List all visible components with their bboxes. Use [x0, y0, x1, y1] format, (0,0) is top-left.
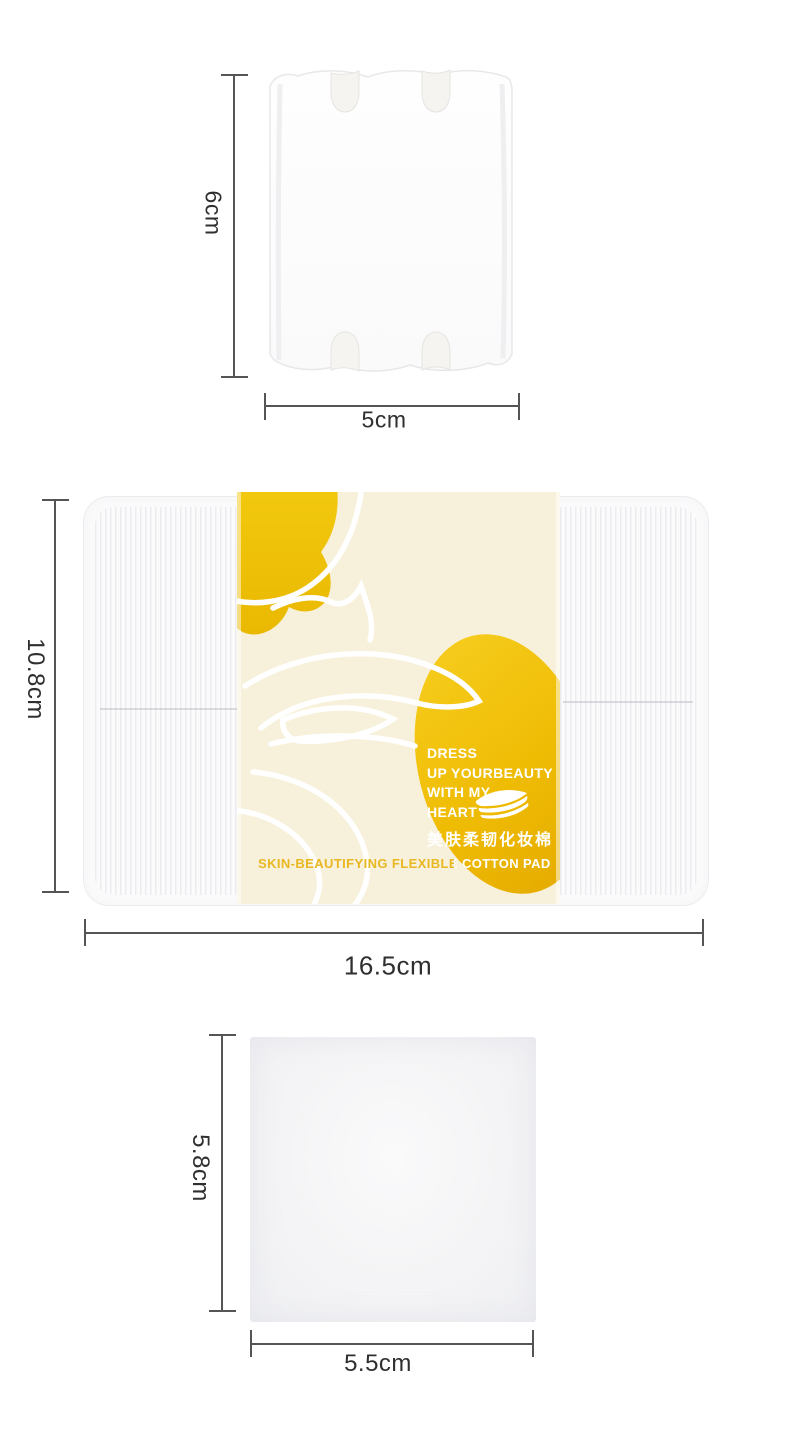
tick — [518, 393, 520, 420]
sleeve-edge-highlight — [237, 492, 241, 904]
tick — [221, 74, 248, 76]
tick — [264, 393, 266, 420]
cotton-pad-stack-icon — [471, 786, 531, 820]
pad-tab — [331, 71, 359, 112]
bottom-pad-height-line — [221, 1035, 223, 1312]
sleeve-edge-highlight — [556, 492, 560, 904]
package-height-line — [54, 500, 56, 893]
tick — [702, 919, 704, 946]
tagline-line: UP YOURBEAUTY — [427, 764, 553, 784]
pad-stack-seam — [100, 708, 238, 710]
tick — [209, 1034, 236, 1036]
package-sleeve: DRESS UP YOURBEAUTY WITH MY HEART 美肤柔韧化妆… — [237, 492, 560, 904]
tick — [42, 499, 69, 501]
bottom-pad-width-line — [251, 1343, 534, 1345]
package-width-line — [85, 932, 704, 934]
tick — [532, 1330, 534, 1357]
tick — [221, 376, 248, 378]
top-pad-height-line — [233, 75, 235, 378]
pad-tab — [422, 332, 450, 370]
product-name-en: SKIN-BEAUTIFYING FLEXIBLE COTTON PAD SKI… — [258, 856, 551, 871]
tagline-line: DRESS — [427, 744, 553, 764]
product-name-cn: 美肤柔韧化妆棉 — [427, 826, 553, 850]
cotton-pad-bottom-image — [250, 1037, 536, 1322]
cotton-pad-top-image — [262, 64, 520, 379]
pad-body — [270, 71, 512, 371]
tick — [42, 891, 69, 893]
tick — [84, 919, 86, 946]
product-dimension-diagram: 6cm 5cm — [0, 0, 790, 1449]
pad-stack-seam — [563, 701, 693, 703]
pad-tab — [331, 332, 359, 371]
pad-tab — [422, 70, 450, 112]
tick — [250, 1330, 252, 1357]
tick — [209, 1310, 236, 1312]
